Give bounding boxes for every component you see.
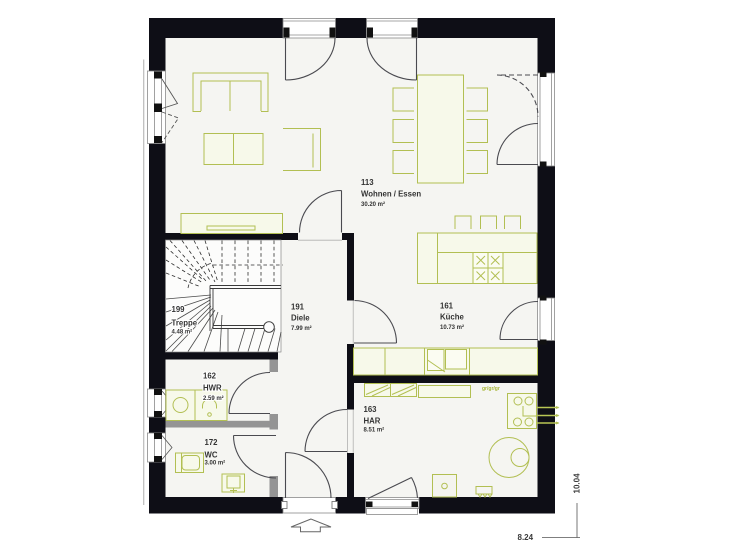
- svg-text:172: 172: [205, 438, 219, 447]
- svg-text:HAR: HAR: [364, 417, 381, 426]
- svg-text:7.99 m²: 7.99 m²: [291, 325, 312, 332]
- svg-text:Diele: Diele: [291, 314, 310, 323]
- svg-text:Küche: Küche: [440, 313, 464, 322]
- svg-text:161: 161: [440, 302, 454, 311]
- svg-text:HWR: HWR: [203, 384, 222, 393]
- svg-text:163: 163: [364, 405, 378, 414]
- svg-text:113: 113: [361, 178, 374, 187]
- svg-text:162: 162: [203, 372, 217, 381]
- svg-text:WC: WC: [205, 451, 218, 460]
- svg-text:Wohnen / Essen: Wohnen / Essen: [361, 190, 421, 199]
- svg-text:2.59 m²: 2.59 m²: [203, 395, 224, 402]
- svg-text:8.51 m²: 8.51 m²: [364, 427, 385, 434]
- svg-text:30.20 m²: 30.20 m²: [361, 201, 385, 208]
- svg-text:10.04: 10.04: [573, 473, 582, 494]
- svg-text:8.24: 8.24: [518, 533, 534, 542]
- svg-text:10.73 m²: 10.73 m²: [440, 324, 464, 331]
- svg-text:191: 191: [291, 303, 305, 312]
- svg-text:gr/gr/gr: gr/gr/gr: [482, 386, 500, 392]
- svg-text:3.00 m²: 3.00 m²: [205, 460, 226, 467]
- svg-text:199: 199: [172, 305, 186, 314]
- svg-text:Treppe: Treppe: [172, 319, 198, 328]
- svg-text:4.48 m²: 4.48 m²: [172, 329, 193, 336]
